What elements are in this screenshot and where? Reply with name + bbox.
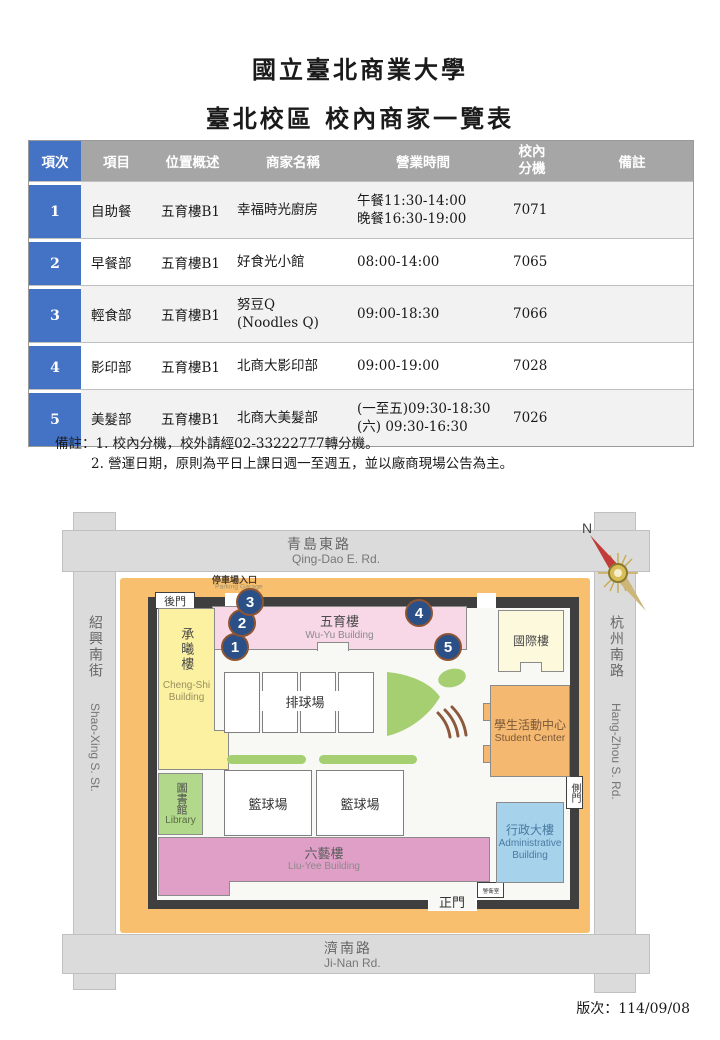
building-international-notch	[520, 662, 542, 672]
road-label-jinan-zh: 濟南路	[324, 938, 372, 958]
row-note	[571, 390, 693, 446]
building-student-center: 學生活動中心 Student Center	[490, 685, 570, 777]
building-chengshi-wing	[214, 730, 229, 770]
row-vendor-name: 好食光小館	[233, 239, 353, 285]
building-liuyee-wing	[158, 881, 230, 896]
row-location: 五育樓B1	[152, 182, 233, 238]
table-header-row: 項次 項目 位置概述 商家名稱 營業時間 校內 分機 備註	[29, 141, 693, 181]
building-student-center-label-zh: 學生活動中心	[494, 718, 566, 732]
row-location: 五育樓B1	[152, 239, 233, 285]
row-index: 1	[29, 182, 81, 238]
road-label-jinan-en: Ji-Nan Rd.	[324, 956, 381, 970]
campus-wall-right	[570, 808, 579, 909]
footnote-2: 2. 營運日期，原則為平日上課日週一至週五，並以廠商現場公告為主。	[91, 454, 513, 474]
row-extension: 7066	[493, 286, 571, 342]
hedge	[319, 755, 417, 764]
campus-wall-right	[570, 597, 579, 776]
row-note	[571, 343, 693, 389]
col-header-name: 商家名稱	[233, 141, 353, 181]
map-marker-3: 3	[236, 588, 264, 616]
row-note	[571, 286, 693, 342]
row-category: 影印部	[81, 343, 152, 389]
map-marker-4: 4	[405, 599, 433, 627]
campus-map: 青島東路 Qing-Dao E. Rd. 濟南路 Ji-Nan Rd. 紹興南街…	[62, 505, 652, 995]
row-hours: 午餐11:30-14:00 晚餐16:30-19:00	[353, 182, 493, 238]
building-liuyee: 六藝樓 Liu-Yee Building	[158, 837, 490, 882]
row-category: 自助餐	[81, 182, 152, 238]
campus-wall-left	[148, 597, 157, 909]
building-international-label: 國際樓	[513, 634, 549, 648]
basketball-label: 籃球場	[326, 793, 394, 813]
basketball-label: 籃球場	[234, 793, 302, 813]
campus-wall-bottom	[477, 900, 579, 909]
row-hours: 09:00-18:30	[353, 286, 493, 342]
row-location: 五育樓B1	[152, 343, 233, 389]
page-subtitle: 臺北校區 校內商家一覽表	[0, 85, 720, 134]
row-index: 2	[29, 239, 81, 285]
building-student-center-label-en: Student Center	[495, 732, 566, 745]
building-chengshi: 承曦樓 Cheng-Shi Building	[158, 608, 215, 770]
building-wuyu-label-en: Wu-Yu Building	[305, 630, 373, 642]
map-marker-1: 1	[221, 633, 249, 661]
main-gate-label: 正門	[429, 893, 475, 910]
row-hours: 09:00-19:00	[353, 343, 493, 389]
row-vendor-name: 努豆Q (Noodles Q)	[233, 286, 353, 342]
building-library: 圖書館 Library	[158, 773, 203, 835]
row-vendor-name: 北商大影印部	[233, 343, 353, 389]
building-wuyu-label-zh: 五育樓	[320, 614, 359, 630]
row-hours: 08:00-14:00	[353, 239, 493, 285]
row-note	[571, 182, 693, 238]
building-library-label-en: Library	[165, 815, 196, 827]
col-header-category: 項目	[81, 141, 152, 181]
document-page: 國立臺北商業大學 臺北校區 校內商家一覽表 項次 項目 位置概述 商家名稱 營業…	[0, 0, 720, 1040]
campus-wall-bottom	[148, 900, 428, 909]
row-note	[571, 239, 693, 285]
volleyball-court	[224, 672, 260, 733]
vendor-table: 項次 項目 位置概述 商家名稱 營業時間 校內 分機 備註 1 自助餐 五育樓B…	[28, 140, 694, 447]
version-label: 版次：114/09/08	[576, 998, 690, 1018]
col-header-location: 位置概述	[152, 141, 233, 181]
road-label-hangzhou-en: Hang-Zhou S. Rd.	[609, 703, 623, 800]
row-extension: 7071	[493, 182, 571, 238]
row-extension: 7065	[493, 239, 571, 285]
col-header-index: 項次	[29, 141, 81, 181]
building-liuyee-label-zh: 六藝樓	[304, 846, 343, 862]
road-label-shaoxing-zh: 紹興南街	[86, 615, 106, 679]
hedge	[227, 755, 306, 764]
building-liuyee-label-en: Liu-Yee Building	[288, 861, 360, 873]
table-row: 3 輕食部 五育樓B1 努豆Q (Noodles Q) 09:00-18:30 …	[29, 285, 693, 342]
building-library-label-zh: 圖書館	[174, 782, 187, 815]
building-wuyu-notch	[317, 642, 349, 651]
row-vendor-name: 幸福時光廚房	[233, 182, 353, 238]
page-title: 國立臺北商業大學	[0, 0, 720, 85]
road-label-shaoxing-en: Shao-Xing S. St.	[88, 703, 102, 792]
volleyball-label: 排球場	[260, 691, 350, 711]
table-row: 4 影印部 五育樓B1 北商大影印部 09:00-19:00 7028	[29, 342, 693, 389]
col-header-note: 備註	[571, 141, 693, 181]
guard-house: 警衛室	[477, 882, 504, 898]
row-index: 4	[29, 343, 81, 389]
row-location: 五育樓B1	[152, 286, 233, 342]
building-administrative-label-en: Administrative Building	[499, 838, 562, 862]
building-administrative-label-zh: 行政大樓	[506, 823, 554, 837]
row-extension: 7028	[493, 343, 571, 389]
guard-house-label: 警衛室	[482, 886, 499, 894]
campus-wall-top	[496, 597, 579, 608]
building-chengshi-label-en: Cheng-Shi Building	[163, 680, 210, 704]
col-header-extension: 校內 分機	[493, 141, 571, 181]
footnote-1: 備註：1. 校內分機，校外請經02-33222777轉分機。	[55, 434, 513, 454]
row-category: 輕食部	[81, 286, 152, 342]
building-administrative: 行政大樓 Administrative Building	[496, 802, 564, 883]
table-row: 2 早餐部 五育樓B1 好食光小館 08:00-14:00 7065	[29, 238, 693, 285]
footnotes: 備註：1. 校內分機，校外請經02-33222777轉分機。 2. 營運日期，原…	[55, 434, 513, 475]
road-label-qingdao-zh: 青島東路	[287, 534, 351, 554]
back-gate-label: 後門	[155, 592, 195, 609]
map-marker-5: 5	[434, 633, 462, 661]
row-index: 3	[29, 286, 81, 342]
building-chengshi-label-zh: 承曦樓	[179, 627, 195, 672]
green-area	[380, 665, 472, 745]
road-label-qingdao-en: Qing-Dao E. Rd.	[292, 552, 380, 566]
col-header-hours: 營業時間	[353, 141, 493, 181]
side-gate-label: 側門	[566, 776, 583, 809]
svg-text:N: N	[582, 520, 592, 536]
row-category: 早餐部	[81, 239, 152, 285]
driveway-gap	[477, 593, 496, 608]
table-row: 1 自助餐 五育樓B1 幸福時光廚房 午餐11:30-14:00 晚餐16:30…	[29, 181, 693, 238]
